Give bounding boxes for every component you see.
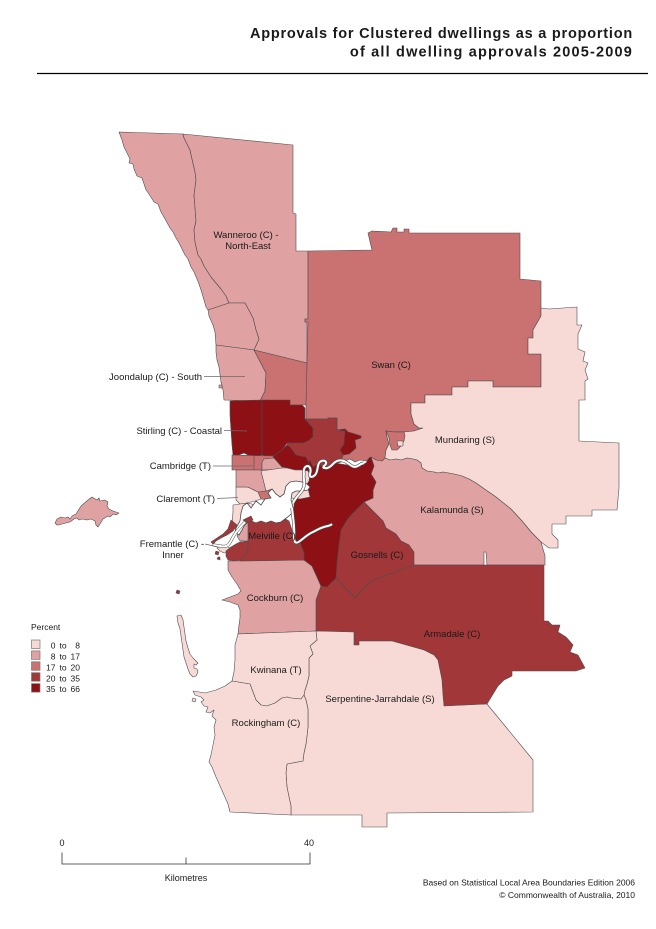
svg-text:© Commonwealth of Australia, 2: © Commonwealth of Australia, 2010 (499, 890, 635, 900)
svg-text:North-East: North-East (225, 241, 271, 252)
svg-text:Approvals for Clustered dwelli: Approvals for Clustered dwellings as a p… (250, 26, 633, 42)
svg-text:Based on Statistical Local Are: Based on Statistical Local Area Boundari… (423, 878, 635, 888)
svg-text:Kwinana (T): Kwinana (T) (250, 665, 301, 676)
svg-text:Percent: Percent (31, 622, 61, 632)
svg-text:to: to (59, 652, 66, 662)
svg-text:20: 20 (71, 662, 81, 672)
svg-text:Kalamunda (S): Kalamunda (S) (420, 505, 483, 516)
svg-text:Armadale (C): Armadale (C) (424, 629, 481, 640)
svg-text:20: 20 (46, 673, 56, 683)
svg-text:Rockingham (C): Rockingham (C) (232, 718, 301, 729)
svg-text:Swan (C): Swan (C) (371, 360, 411, 371)
svg-text:8: 8 (51, 652, 56, 662)
svg-text:Claremont (T): Claremont (T) (156, 494, 215, 505)
svg-text:to: to (59, 684, 66, 694)
svg-text:Joondalup (C) - South: Joondalup (C) - South (109, 372, 202, 383)
svg-text:Fremantle (C) -: Fremantle (C) - (140, 539, 204, 550)
svg-text:0: 0 (59, 838, 64, 848)
svg-text:to: to (59, 662, 66, 672)
svg-text:35: 35 (71, 673, 81, 683)
svg-text:Wanneroo (C) -: Wanneroo (C) - (213, 230, 278, 241)
svg-text:Cambridge (T): Cambridge (T) (150, 461, 211, 472)
svg-text:to: to (59, 641, 66, 651)
svg-text:Melville (C): Melville (C) (248, 531, 296, 542)
svg-text:Kilometres: Kilometres (165, 873, 208, 883)
svg-text:17: 17 (71, 652, 81, 662)
svg-text:40: 40 (304, 838, 314, 848)
svg-text:17: 17 (46, 662, 56, 672)
svg-text:Serpentine-Jarrahdale (S): Serpentine-Jarrahdale (S) (325, 694, 434, 705)
svg-text:35: 35 (46, 684, 56, 694)
svg-text:to: to (59, 673, 66, 683)
svg-text:Stirling (C) - Coastal: Stirling (C) - Coastal (136, 426, 222, 437)
svg-text:Mundaring (S): Mundaring (S) (435, 435, 495, 446)
svg-text:Cockburn (C): Cockburn (C) (247, 593, 304, 604)
svg-text:66: 66 (71, 684, 81, 694)
svg-text:0: 0 (51, 641, 56, 651)
svg-text:Inner: Inner (162, 550, 184, 561)
svg-text:of all dwelling approvals 2005: of all dwelling approvals 2005-2009 (350, 45, 633, 61)
svg-text:Gosnells (C): Gosnells (C) (351, 550, 404, 561)
svg-text:8: 8 (75, 641, 80, 651)
